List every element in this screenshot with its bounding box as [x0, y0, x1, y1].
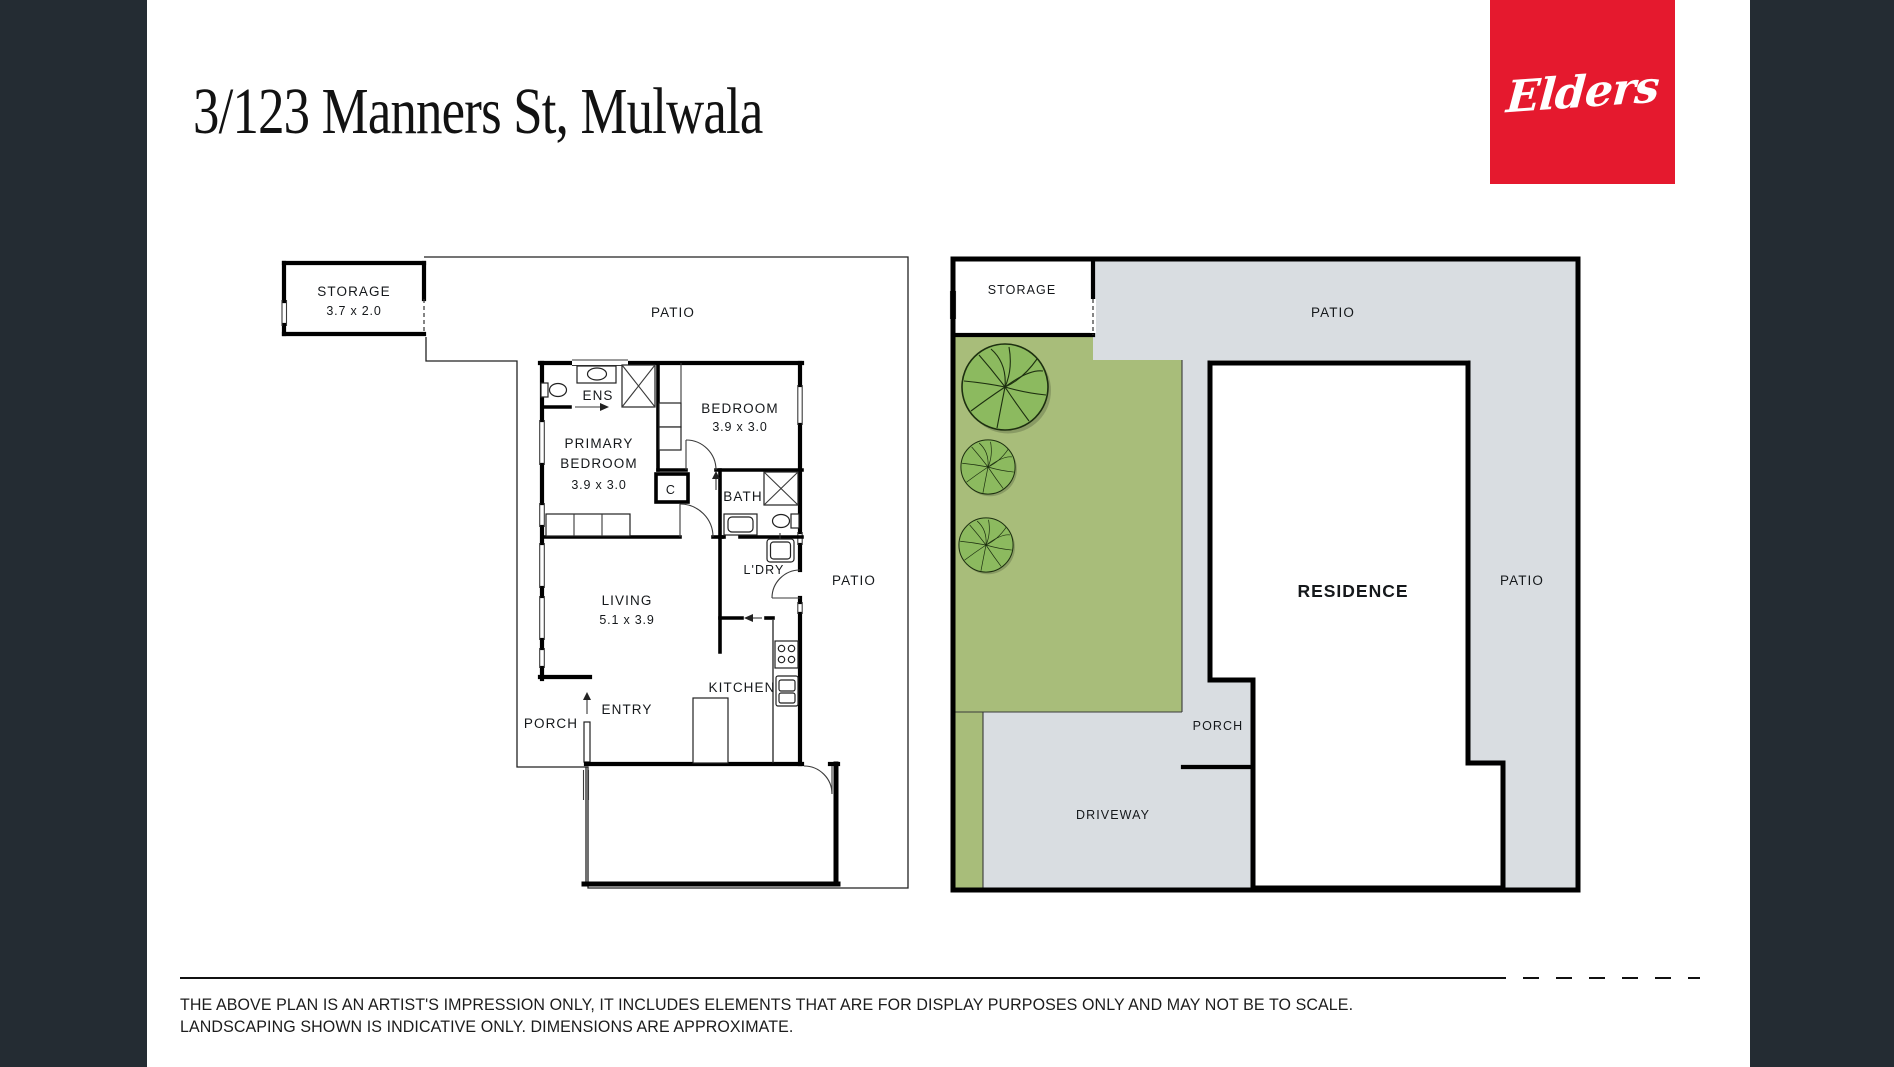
bedroom-dim: 3.9 x 3.0: [712, 420, 767, 434]
residence-outline: [1210, 363, 1503, 888]
toilet-icon: [541, 383, 567, 397]
toilet-icon: [773, 514, 800, 528]
disclaimer-line-1: THE ABOVE PLAN IS AN ARTIST'S IMPRESSION…: [180, 994, 1538, 1016]
closet-label: C: [666, 483, 676, 497]
kitchen-label: KITCHEN: [709, 680, 776, 695]
bath-label: BATH: [723, 489, 762, 504]
laundry-label: L'DRY: [743, 563, 784, 577]
patio-right-lower-area: [1503, 763, 1578, 890]
vanity-icon: [724, 514, 757, 535]
patio-right-area: [1468, 360, 1578, 763]
courtyard: [584, 764, 839, 884]
storage-dim: 3.7 x 2.0: [326, 304, 381, 318]
storage-label: STORAGE: [317, 284, 390, 299]
floorplan-canvas: STORAGE PATIO PATIO RESIDENCE PORCH DRIV…: [0, 0, 1894, 1067]
site-storage-label: STORAGE: [988, 283, 1057, 297]
ens-label: ENS: [582, 388, 613, 403]
patio-top-label: PATIO: [651, 305, 695, 320]
entry-arrow-icon: [583, 692, 591, 714]
residence-label: RESIDENCE: [1297, 581, 1408, 601]
entry-door: [584, 722, 590, 762]
island-bench: [693, 698, 728, 763]
sink-icon: [776, 676, 798, 706]
driveway-area: [983, 712, 1253, 890]
site-patio-top-label: PATIO: [1311, 305, 1355, 320]
living-dim: 5.1 x 3.9: [599, 613, 654, 627]
site-storage-room: [949, 259, 1096, 335]
disclaimer-line-2: LANDSCAPING SHOWN IS INDICATIVE ONLY. DI…: [180, 1016, 1538, 1038]
shower-icon: [764, 472, 798, 505]
living-label: LIVING: [602, 593, 653, 608]
site-patio-right-label: PATIO: [1500, 573, 1544, 588]
bedroom-label: BEDROOM: [701, 401, 778, 416]
cooktop-icon: [775, 641, 798, 668]
wardrobe-icon: [546, 514, 630, 536]
vanity-icon: [577, 366, 616, 383]
walkway-area: [1182, 360, 1210, 712]
porch-label: PORCH: [524, 716, 578, 731]
garden-strip: [953, 712, 983, 890]
site-plan: STORAGE PATIO PATIO RESIDENCE PORCH DRIV…: [949, 259, 1578, 890]
floor-plan: STORAGE 3.7 x 2.0 PATIO ENS BEDROOM 3.9 …: [282, 257, 908, 888]
disclaimer: THE ABOVE PLAN IS AN ARTIST'S IMPRESSION…: [180, 994, 1538, 1038]
entry-label: ENTRY: [601, 702, 652, 717]
site-porch-label: PORCH: [1193, 719, 1244, 733]
primary-bedroom-label-1: PRIMARY: [565, 436, 634, 451]
driveway-label: DRIVEWAY: [1076, 808, 1150, 822]
patio-right-label: PATIO: [832, 573, 876, 588]
primary-bedroom-label-2: BEDROOM: [560, 456, 637, 471]
primary-bedroom-dim: 3.9 x 3.0: [571, 478, 626, 492]
